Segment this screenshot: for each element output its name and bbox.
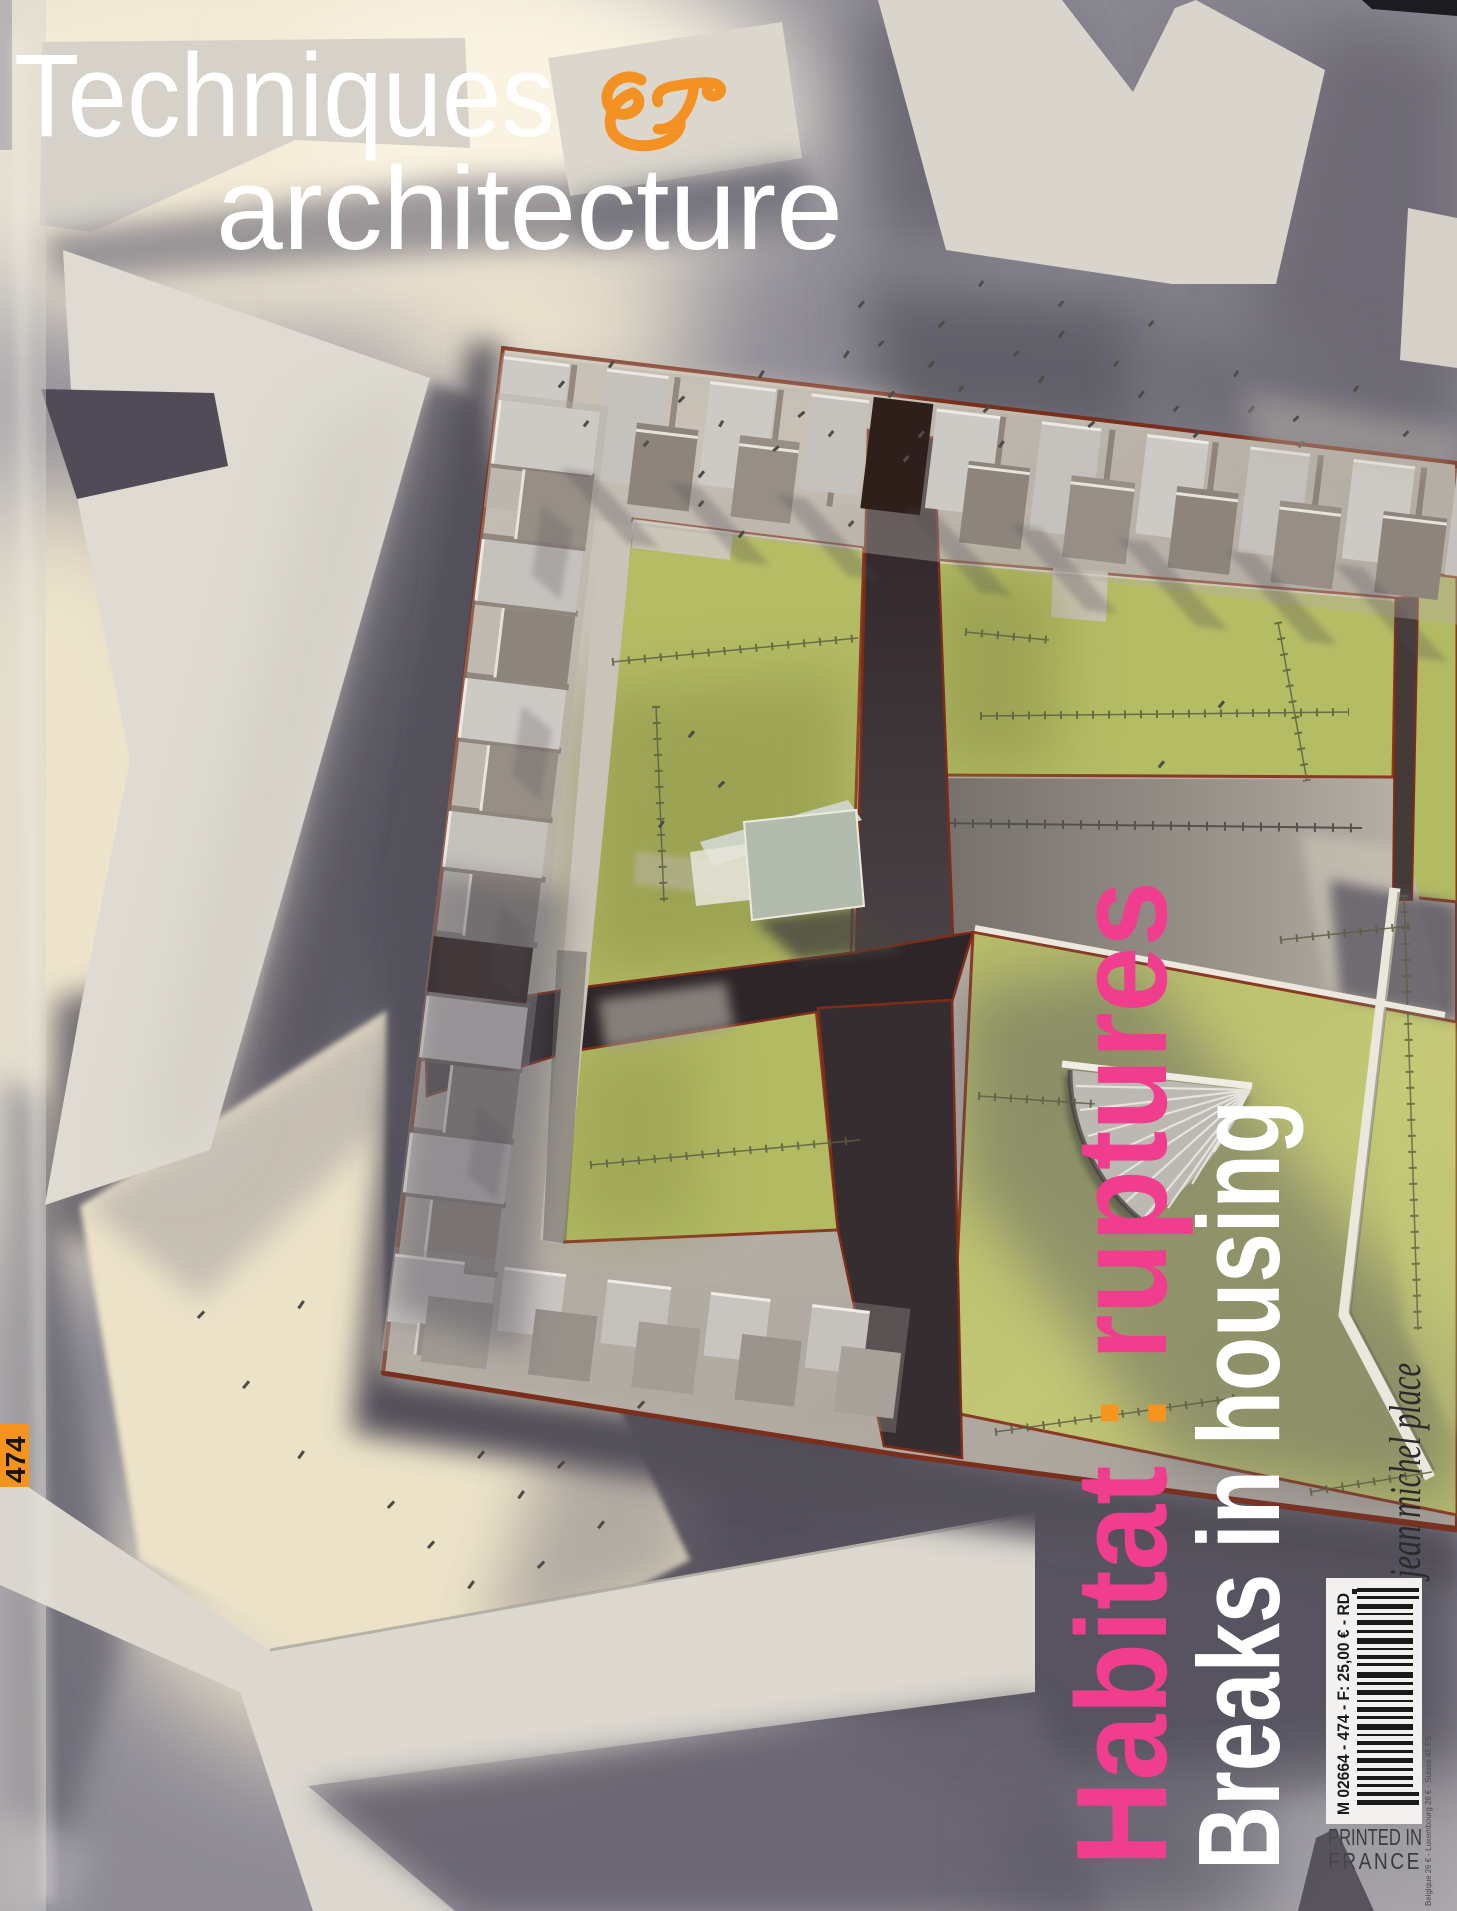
svg-text:Breaks in housing: Breaks in housing [1174, 1100, 1304, 1870]
svg-text:M 02664 - 474 - F: 25,00 € - R: M 02664 - 474 - F: 25,00 € - RD [1334, 1593, 1353, 1815]
svg-text:Belgique 26 € - Luxembourg 26: Belgique 26 € - Luxembourg 26 € - Suisse… [1424, 1736, 1433, 1906]
svg-text:Habitat : ruptures: Habitat : ruptures [1050, 881, 1194, 1866]
svg-text:architecture: architecture [216, 143, 843, 275]
svg-text:jean michel place: jean michel place [1381, 1363, 1430, 1581]
svg-text:474: 474 [0, 1436, 31, 1483]
